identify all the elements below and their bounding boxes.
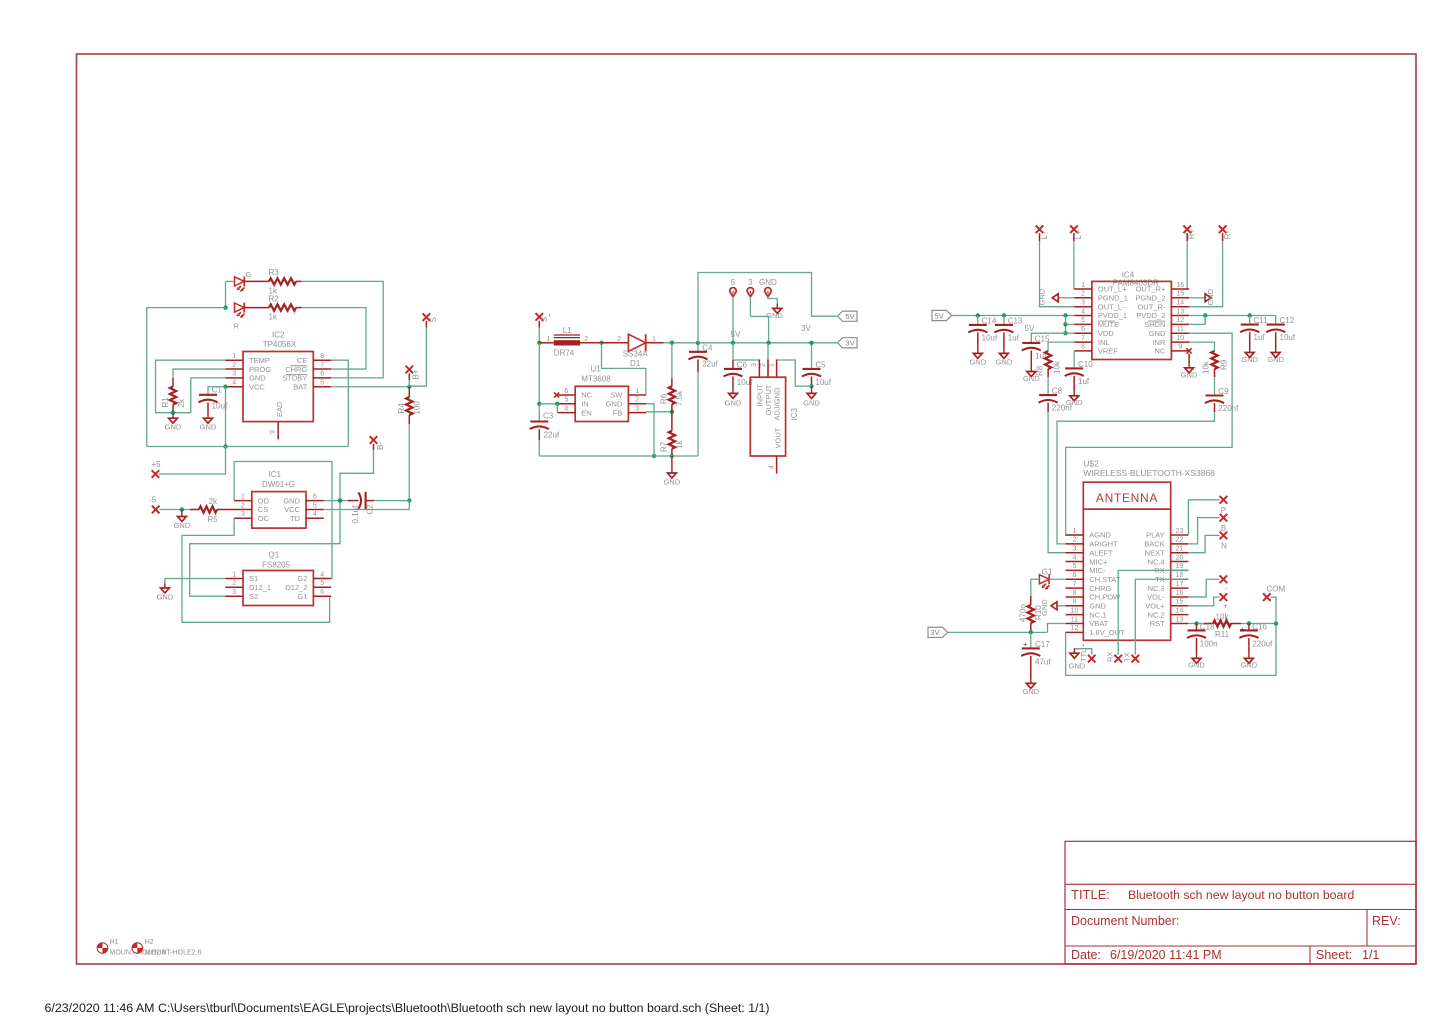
svg-text:PROG: PROG [249,365,271,374]
svg-text:20: 20 [1176,554,1184,561]
svg-text:5V: 5V [731,330,741,339]
svg-text:5: 5 [313,502,317,509]
svg-text:D1: D1 [630,359,641,368]
svg-text:9: 9 [1072,599,1076,606]
svg-text:Document Number:: Document Number: [1071,914,1179,928]
svg-text:L+: L+ [1074,230,1083,239]
svg-text:S: S [540,317,549,322]
svg-text:MT3608: MT3608 [581,374,611,383]
svg-text:L-: L- [1040,232,1049,239]
svg-text:GND: GND [606,400,623,409]
svg-text:GND: GND [766,311,783,320]
svg-text:OUT_L+: OUT_L+ [1098,285,1127,294]
svg-text:VBAT: VBAT [1089,619,1108,628]
svg-text:ADJ/GND: ADJ/GND [773,387,782,421]
svg-text:H2: H2 [145,939,154,946]
svg-text:15: 15 [1176,599,1184,606]
svg-text:EAD: EAD [275,401,284,417]
svg-text:+: + [1023,640,1028,649]
svg-text:3: 3 [232,589,236,596]
svg-text:3: 3 [1072,546,1076,553]
svg-text:C16: C16 [1252,622,1267,631]
svg-text:10k: 10k [1202,360,1211,374]
svg-text:GND: GND [969,358,986,367]
svg-text:GND: GND [1188,661,1205,670]
svg-text:22uf: 22uf [544,430,560,439]
svg-text:PLAY: PLAY [1146,531,1165,540]
svg-text:7: 7 [320,362,324,369]
svg-text:GND: GND [725,398,742,407]
svg-text:C3: C3 [543,412,554,421]
svg-text:P: P [1221,506,1226,515]
svg-text:U1: U1 [591,365,602,374]
svg-text:G2: G2 [297,574,307,583]
svg-text:VREF: VREF [1098,347,1118,356]
svg-text:3: 3 [241,511,245,518]
svg-text:GND: GND [1066,398,1083,407]
svg-text:7: 7 [1072,581,1076,588]
svg-text:OD: OD [258,496,270,505]
svg-text:VDD: VDD [1098,329,1114,338]
svg-text:C11: C11 [1254,316,1269,325]
svg-text:22uf: 22uf [702,360,718,369]
svg-text:GND: GND [1181,370,1198,379]
svg-text:1uf: 1uf [1008,333,1020,342]
svg-text:470o: 470o [1018,604,1027,622]
svg-text:11: 11 [1071,616,1078,623]
svg-text:GND: GND [1038,288,1047,305]
svg-text:GND: GND [664,478,681,487]
svg-text:2: 2 [241,502,245,509]
svg-text:D12_1: D12_1 [249,583,271,592]
svg-text:ARIGHT: ARIGHT [1089,540,1118,549]
svg-text:AGND: AGND [1089,531,1111,540]
svg-text:S2: S2 [249,592,258,601]
svg-text:4: 4 [564,405,568,412]
svg-text:G1: G1 [297,592,307,601]
svg-text:220uf: 220uf [1252,640,1273,649]
svg-text:MIC-: MIC- [1089,566,1106,575]
svg-text:GND: GND [1040,599,1049,616]
svg-text:VCC: VCC [249,382,265,391]
svg-text:CH.STAT: CH.STAT [1089,575,1120,584]
svg-text:13: 13 [1176,308,1184,315]
svg-text:RST: RST [1150,619,1165,628]
svg-text:1k: 1k [269,313,278,322]
svg-text:U$2: U$2 [1083,458,1099,468]
svg-text:2: 2 [1081,291,1085,298]
svg-text:GND: GND [157,593,174,602]
svg-text:18: 18 [1176,572,1184,579]
svg-text:R8: R8 [1036,365,1045,376]
svg-text:GND: GND [803,398,820,407]
svg-text:N: N [1221,542,1227,551]
svg-text:NC.1: NC.1 [1089,610,1106,619]
svg-text:47uf: 47uf [1035,657,1051,666]
svg-text:1: 1 [1072,528,1076,535]
svg-text:11: 11 [1177,326,1184,333]
svg-text:C12: C12 [1280,316,1295,325]
svg-text:14: 14 [1176,607,1184,614]
svg-text:C14: C14 [982,317,997,326]
svg-text:FB: FB [613,408,623,417]
svg-text:3V: 3V [845,339,854,348]
svg-text:220nf: 220nf [1218,404,1239,413]
svg-text:NC.2: NC.2 [1148,610,1165,619]
svg-text:TP4056X: TP4056X [263,340,297,349]
svg-text:2: 2 [617,336,621,343]
svg-text:MOUNT-HOLE2.8: MOUNT-HOLE2.8 [145,950,202,957]
svg-text:5V: 5V [934,311,943,320]
svg-text:VOL-: VOL- [1147,593,1165,602]
svg-text:3: 3 [748,278,753,287]
svg-text:R2: R2 [269,294,280,303]
svg-text:4: 4 [1072,554,1076,561]
svg-text:EN: EN [581,408,591,417]
svg-text:10: 10 [1071,607,1079,614]
svg-text:C8: C8 [1052,387,1063,396]
svg-text:6/23/2020 11:46 AM C:\Users\t: 6/23/2020 11:46 AM C:\Users\tburl\Docume… [45,1001,770,1015]
svg-text:2: 2 [1072,537,1076,544]
svg-text:WIRELESS-BLUETOOTH-XS3868: WIRELESS-BLUETOOTH-XS3868 [1083,468,1215,478]
svg-text:GND: GND [200,423,217,432]
svg-text:1: 1 [547,336,551,343]
svg-text:5: 5 [1072,563,1076,570]
svg-text:8: 8 [320,353,324,360]
svg-text:S1: S1 [249,574,258,583]
svg-text:23: 23 [1176,528,1184,535]
svg-text:PVDD_2: PVDD_2 [1136,311,1165,320]
svg-text:+: + [1223,602,1228,611]
svg-text:DR74: DR74 [554,349,575,358]
svg-text:-: - [1225,584,1228,593]
svg-text:12: 12 [1176,317,1184,324]
svg-text:R11: R11 [1215,630,1230,639]
svg-text:GND: GND [1149,329,1166,338]
svg-text:C10: C10 [1078,360,1093,369]
svg-text:8: 8 [1072,590,1076,597]
svg-text:NC.4: NC.4 [1148,557,1165,566]
svg-text:CS: CS [258,505,268,514]
svg-text:6: 6 [313,493,317,500]
svg-text:8: 8 [1081,344,1085,351]
svg-text:GND: GND [249,374,266,383]
svg-text:C18: C18 [1200,622,1215,631]
svg-text:INL: INL [1098,338,1110,347]
svg-text:NC: NC [1155,347,1166,356]
svg-text:5: 5 [731,278,736,287]
svg-text:GND: GND [1206,288,1215,305]
svg-text:CE: CE [297,356,307,365]
svg-text:R-: R- [1223,230,1232,239]
svg-text:VOUT: VOUT [774,427,783,448]
svg-text:2: 2 [635,397,639,404]
svg-text:4: 4 [313,511,317,518]
svg-text:H1: H1 [110,939,119,946]
svg-text:VCC: VCC [284,505,300,514]
svg-text:PVDD_1: PVDD_1 [1098,311,1127,320]
svg-text:C13: C13 [1008,317,1023,326]
svg-text:14: 14 [1176,300,1184,307]
svg-text:IC1: IC1 [269,470,282,479]
svg-text:1uf: 1uf [1078,377,1090,386]
svg-text:PGND_1: PGND_1 [1098,294,1128,303]
svg-text:6: 6 [320,589,324,596]
svg-text:B: B [1221,524,1226,533]
svg-text:2: 2 [760,363,767,367]
svg-text:R9: R9 [1219,359,1228,370]
svg-text:COM: COM [1267,584,1286,593]
svg-text:5: 5 [564,397,568,404]
svg-text:DW01+G: DW01+G [262,480,295,489]
svg-text:G1: G1 [1042,568,1053,577]
svg-text:C9: C9 [1218,387,1229,396]
svg-text:3V: 3V [801,324,811,333]
svg-text:1: 1 [232,571,236,578]
svg-text:16: 16 [1176,590,1184,597]
svg-text:IN: IN [581,400,589,409]
svg-text:1: 1 [768,363,775,367]
svg-text:17: 17 [1176,581,1184,588]
svg-text:IC3: IC3 [790,408,799,421]
svg-text:L1: L1 [563,326,572,335]
svg-text:10uf: 10uf [1280,333,1296,342]
svg-text:2: 2 [232,580,236,587]
svg-text:1: 1 [232,353,236,360]
svg-text:7: 7 [1081,335,1085,342]
svg-text:3: 3 [635,405,639,412]
svg-text:GND: GND [1267,355,1284,364]
svg-text:+: + [1240,625,1245,634]
svg-text:3: 3 [232,371,236,378]
svg-text:2: 2 [584,336,588,343]
svg-text:R3: R3 [269,268,280,277]
svg-text:S: S [429,317,438,322]
svg-text:C5: C5 [815,361,826,370]
svg-text:R5: R5 [208,515,219,524]
svg-text:10uf: 10uf [982,333,998,342]
svg-text:OC: OC [258,514,270,523]
svg-text:0.1uf: 0.1uf [351,505,360,524]
svg-text:IC2: IC2 [272,330,285,339]
svg-text:TD: TD [290,514,301,523]
svg-text:3: 3 [1081,300,1085,307]
svg-text:C1: C1 [212,385,223,394]
svg-text:+5: +5 [152,460,162,469]
svg-text:1: 1 [652,336,656,343]
svg-text:BAT: BAT [293,382,307,391]
svg-text:4: 4 [232,380,236,387]
svg-text:6: 6 [320,371,324,378]
svg-text:GND: GND [165,423,182,432]
svg-text:CH.POW: CH.POW [1089,593,1121,602]
svg-text:TEMP: TEMP [249,356,270,365]
svg-text:MIC+: MIC+ [1089,557,1108,566]
svg-text:TX: TX [1123,652,1132,662]
svg-text:5: 5 [1081,317,1085,324]
svg-text:VOL+: VOL+ [1145,602,1165,611]
svg-text:10k: 10k [1216,613,1230,622]
svg-text:3V: 3V [930,628,939,637]
svg-text:6: 6 [564,388,568,395]
svg-text:R1: R1 [161,397,170,408]
svg-text:OUT_L-: OUT_L- [1098,302,1125,311]
svg-text:C17: C17 [1035,640,1050,649]
svg-text:TTL: TTL [1079,649,1088,662]
svg-text:PGND_2: PGND_2 [1135,294,1165,303]
svg-text:Bluetooth sch new layout no bu: Bluetooth sch new layout no button board [1128,888,1354,902]
svg-text:NC.3: NC.3 [1148,584,1165,593]
svg-text:RX: RX [1105,652,1114,662]
svg-text:2: 2 [232,362,236,369]
svg-text:B-: B- [376,442,385,450]
svg-text:15: 15 [1176,291,1184,298]
svg-text:1uf: 1uf [1254,333,1266,342]
svg-text:GND: GND [1241,661,1258,670]
svg-text:1: 1 [635,388,639,395]
svg-text:10uf: 10uf [815,378,831,387]
svg-text:-5: -5 [149,496,157,505]
svg-text:12: 12 [1071,625,1079,632]
svg-text:GND: GND [1089,602,1106,611]
svg-text:1.8V_OUT: 1.8V_OUT [1089,628,1125,637]
svg-text:6/19/2020 11:41 PM: 6/19/2020 11:41 PM [1110,948,1222,962]
svg-text:9: 9 [1178,344,1182,351]
svg-text:GND: GND [996,358,1013,367]
svg-text:2k: 2k [177,398,186,407]
svg-text:GND: GND [1022,687,1039,696]
svg-text:D12_2: D12_2 [285,583,307,592]
svg-text:10: 10 [1176,335,1184,342]
svg-text:BACK: BACK [1144,540,1164,549]
svg-text:ALEFT: ALEFT [1089,548,1113,557]
svg-text:1/1: 1/1 [1362,948,1379,962]
svg-text:6: 6 [1081,326,1085,333]
svg-text:9: 9 [270,430,277,434]
svg-text:NEXT: NEXT [1145,548,1165,557]
svg-text:GND: GND [759,278,777,287]
svg-text:Date:: Date: [1071,948,1101,962]
svg-text:SW: SW [610,391,623,400]
svg-text:GND: GND [283,496,300,505]
svg-text:INR: INR [1152,338,1166,347]
svg-text:5: 5 [320,380,324,387]
svg-text:OUT_R-: OUT_R- [1137,302,1165,311]
svg-text:4: 4 [768,465,775,469]
svg-text:4: 4 [320,571,324,578]
svg-text:GND: GND [1241,355,1258,364]
svg-text:10k: 10k [1052,360,1061,374]
svg-text:22: 22 [1176,537,1184,544]
svg-text:CHRG: CHRG [1089,584,1111,593]
svg-text:19: 19 [1176,563,1184,570]
svg-text:R+: R+ [1188,228,1197,239]
svg-text:NC: NC [581,391,592,400]
svg-text:13: 13 [1176,616,1184,623]
svg-text:REV:: REV: [1372,914,1401,928]
svg-text:FS8205: FS8205 [262,560,291,569]
svg-text:5V: 5V [845,312,854,321]
svg-text:1k: 1k [675,440,684,449]
svg-text:3: 3 [751,363,758,367]
svg-text:21: 21 [1176,546,1184,553]
svg-text:C6: C6 [737,361,748,370]
svg-text:R: R [234,321,240,330]
svg-text:5: 5 [320,580,324,587]
svg-text:R6: R6 [659,393,668,404]
svg-text:OUT_R+: OUT_R+ [1136,285,1166,294]
svg-text:B+: B+ [412,369,421,379]
svg-text:5V: 5V [1025,324,1035,333]
svg-text:1: 1 [241,493,245,500]
svg-text:ANTENNA: ANTENNA [1096,491,1158,505]
svg-text:R4: R4 [397,403,406,414]
svg-text:7.5k: 7.5k [675,390,684,406]
svg-text:GND: GND [174,521,191,530]
svg-text:Q1: Q1 [269,551,280,560]
svg-text:100n: 100n [1200,640,1218,649]
svg-text:G: G [246,270,252,279]
svg-text:4: 4 [1081,308,1085,315]
svg-text:Sheet:: Sheet: [1316,948,1352,962]
svg-text:2k: 2k [209,497,218,506]
svg-text:R7: R7 [659,441,668,452]
svg-text:16: 16 [1176,282,1184,289]
svg-text:TITLE:: TITLE: [1071,887,1110,902]
svg-text:100: 100 [413,401,422,415]
svg-text:1: 1 [1081,282,1085,289]
svg-text:6: 6 [1072,572,1076,579]
svg-text:GND: GND [1069,661,1086,670]
svg-text:C4: C4 [702,344,713,353]
svg-text:SS34A: SS34A [623,349,649,358]
